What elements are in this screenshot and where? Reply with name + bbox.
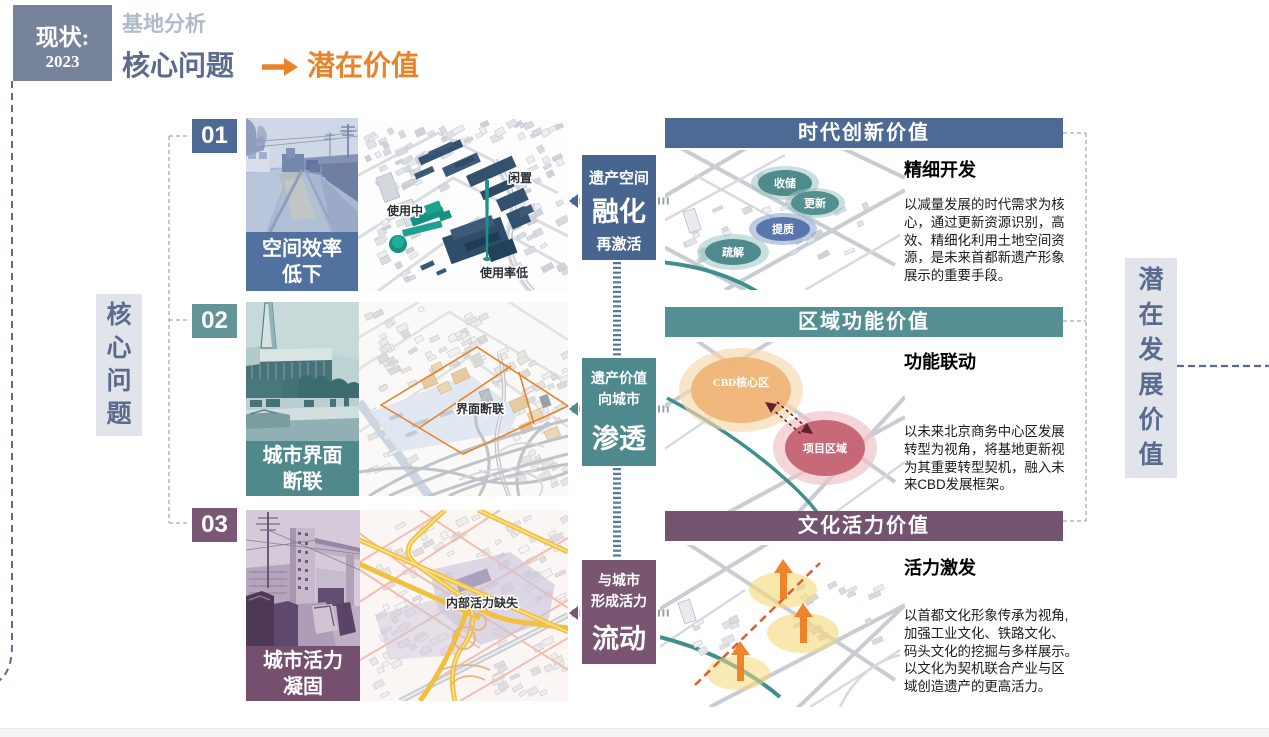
- svg-text:更新: 更新: [804, 196, 826, 210]
- svg-text:闲置: 闲置: [508, 171, 532, 185]
- svg-text:CBD核心区: CBD核心区: [713, 375, 769, 389]
- svg-text:疏解: 疏解: [722, 245, 744, 259]
- svg-text:项目区域: 项目区域: [803, 441, 847, 455]
- svg-text:提质: 提质: [772, 222, 794, 236]
- svg-text:界面断联: 界面断联: [456, 401, 504, 416]
- svg-text:收储: 收储: [774, 176, 796, 190]
- svg-text:使用中: 使用中: [386, 203, 423, 218]
- svg-text:使用率低: 使用率低: [479, 265, 528, 280]
- svg-text:内部活力缺失: 内部活力缺失: [446, 595, 519, 610]
